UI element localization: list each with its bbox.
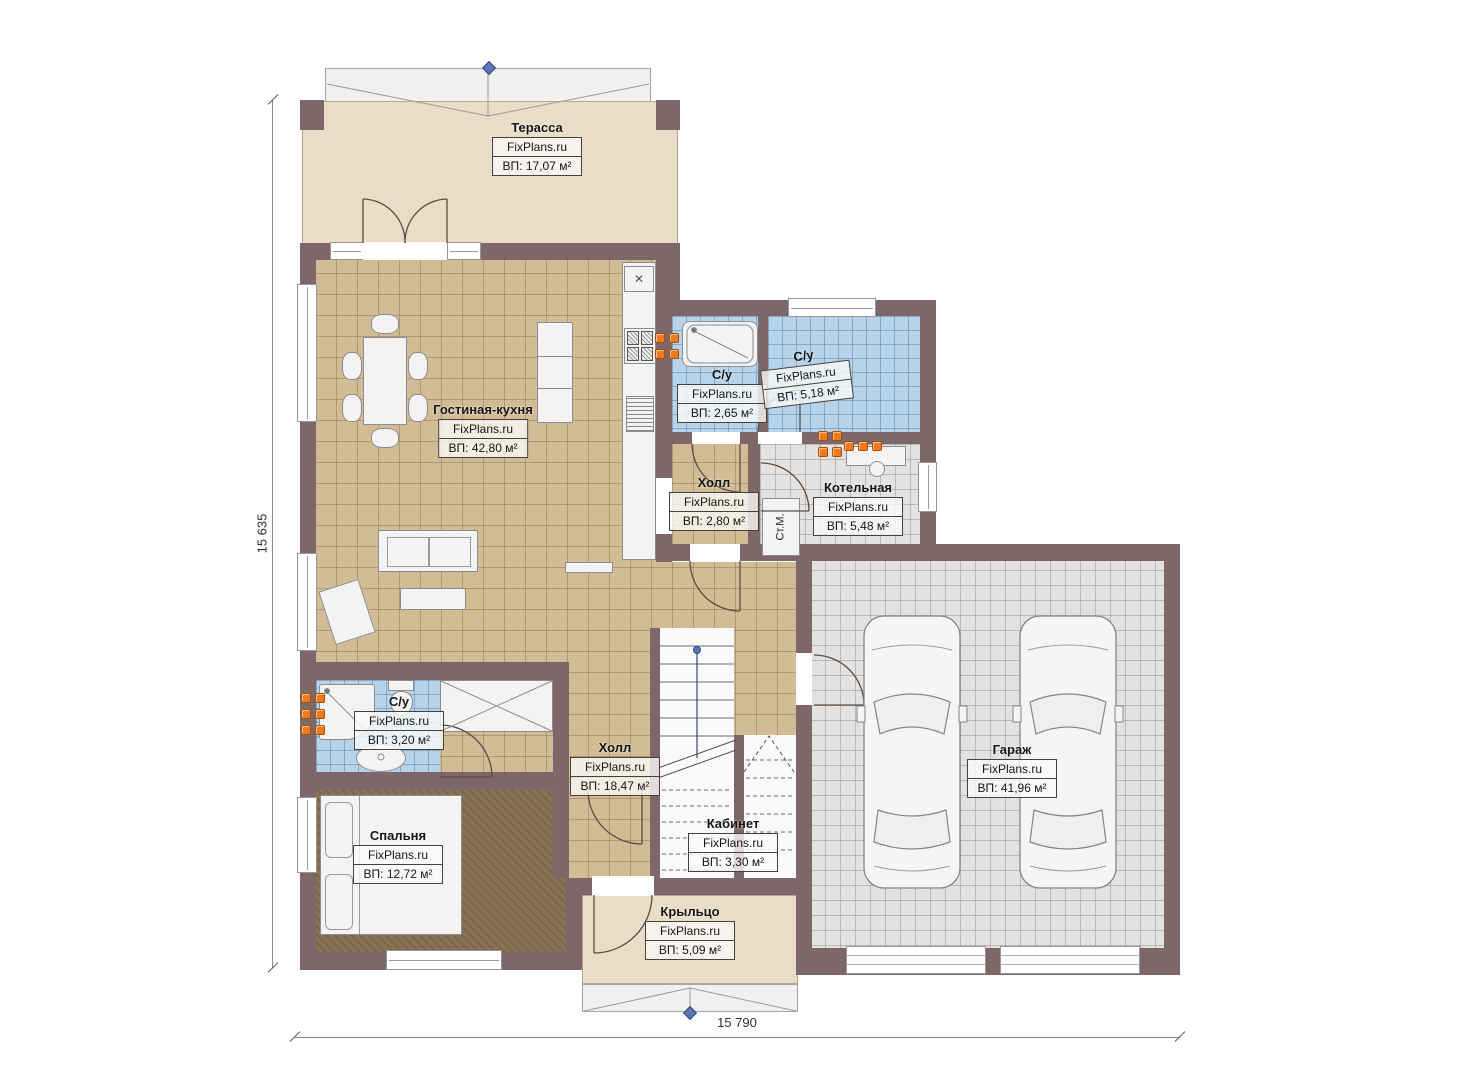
dimension-tick bbox=[268, 94, 279, 105]
radiator-dot-icon bbox=[655, 333, 665, 343]
radiator-dot-icon bbox=[858, 441, 868, 451]
staircase bbox=[660, 628, 734, 762]
room-info-box: FixPlans.ru ВП: 12,72 м² bbox=[353, 845, 443, 884]
brand-label: FixPlans.ru bbox=[689, 834, 777, 853]
garage-gate bbox=[846, 946, 986, 974]
wall bbox=[566, 878, 582, 970]
room-area: ВП: 17,07 м² bbox=[493, 157, 581, 175]
room-name: Гостиная-кухня bbox=[433, 402, 533, 417]
room-name: Котельная bbox=[813, 480, 903, 495]
room-label-wc-big: С/у FixPlans.ru ВП: 5,18 м² bbox=[758, 343, 854, 410]
room-area: ВП: 12,72 м² bbox=[354, 865, 442, 883]
burner-icon bbox=[627, 347, 639, 361]
wall bbox=[920, 300, 936, 560]
terrace-floor bbox=[302, 101, 678, 244]
wall bbox=[553, 662, 569, 878]
room-area: ВП: 5,48 м² bbox=[814, 517, 902, 535]
garage-door-opening bbox=[796, 653, 812, 705]
door-opening bbox=[758, 432, 802, 444]
burner-icon bbox=[627, 331, 639, 345]
toilet-tank bbox=[388, 680, 414, 691]
cushion bbox=[429, 537, 471, 567]
chair bbox=[408, 394, 428, 422]
room-info-box: FixPlans.ru ВП: 5,48 м² bbox=[813, 497, 903, 536]
dimension-width-label: 15 790 bbox=[662, 1015, 812, 1030]
radiator-dot-icon bbox=[315, 693, 325, 703]
brand-label: FixPlans.ru bbox=[354, 846, 442, 865]
room-label-bedroom: Спальня FixPlans.ru ВП: 12,72 м² bbox=[353, 828, 443, 884]
radiator-dot-icon bbox=[301, 709, 311, 719]
chair bbox=[408, 352, 428, 380]
chair bbox=[371, 314, 399, 334]
room-name: Холл bbox=[669, 475, 759, 490]
dishwasher bbox=[626, 396, 654, 432]
room-name: Гараж bbox=[967, 742, 1057, 757]
brand-label: FixPlans.ru bbox=[439, 420, 527, 439]
window bbox=[297, 284, 317, 422]
room-label-wc-lower: С/у FixPlans.ru ВП: 3,20 м² bbox=[354, 694, 444, 750]
room-area: ВП: 18,47 м² bbox=[571, 777, 659, 795]
burner-icon bbox=[641, 331, 653, 345]
room-area: ВП: 42,80 м² bbox=[439, 439, 527, 457]
room-area: ВП: 5,09 м² bbox=[646, 941, 734, 959]
brand-label: FixPlans.ru bbox=[968, 760, 1056, 779]
room-name: Крыльцо bbox=[645, 904, 735, 919]
radiator-dot-icon bbox=[844, 441, 854, 451]
burner-icon bbox=[641, 347, 653, 361]
kitchen-island bbox=[537, 322, 573, 423]
door-opening bbox=[690, 544, 740, 561]
room-info-box: FixPlans.ru ВП: 5,09 м² bbox=[645, 921, 735, 960]
bathtub bbox=[682, 321, 758, 367]
dimension-line-left bbox=[272, 100, 273, 968]
radiator-dot-icon bbox=[832, 431, 842, 441]
radiator-dot-icon bbox=[301, 725, 311, 735]
door-opening bbox=[692, 432, 740, 444]
corridor-floor bbox=[440, 732, 566, 772]
window bbox=[330, 242, 364, 260]
room-name: Терасса bbox=[492, 120, 582, 135]
room-info-box: FixPlans.ru ВП: 2,80 м² bbox=[669, 492, 759, 531]
dimension-line-bottom bbox=[295, 1037, 1180, 1038]
brand-label: FixPlans.ru bbox=[493, 138, 581, 157]
radiator bbox=[655, 333, 677, 359]
garage-gate bbox=[1000, 946, 1140, 974]
brand-label: FixPlans.ru bbox=[571, 758, 659, 777]
chair bbox=[342, 352, 362, 380]
radiator-dot-icon bbox=[818, 431, 828, 441]
cooker-hood-icon: ✕ bbox=[624, 266, 654, 292]
radiator-dot-icon bbox=[315, 725, 325, 735]
brand-label: FixPlans.ru bbox=[678, 385, 766, 404]
pillow bbox=[325, 802, 353, 858]
wall bbox=[1164, 544, 1180, 975]
radiator-dot-icon bbox=[669, 349, 679, 359]
entrance-door-opening bbox=[592, 876, 654, 896]
window bbox=[918, 462, 937, 512]
door-opening bbox=[363, 242, 448, 260]
room-label-hall-small: Холл FixPlans.ru ВП: 2,80 м² bbox=[669, 475, 759, 531]
window bbox=[386, 950, 502, 970]
room-info-box: FixPlans.ru ВП: 17,07 м² bbox=[492, 137, 582, 176]
pillow bbox=[325, 874, 353, 930]
room-name: Кабинет bbox=[688, 816, 778, 831]
tv-bench bbox=[565, 562, 613, 573]
room-info-box: FixPlans.ru ВП: 2,65 м² bbox=[677, 384, 767, 423]
boiler bbox=[869, 461, 885, 477]
room-label-boiler: Котельная FixPlans.ru ВП: 5,48 м² bbox=[813, 480, 903, 536]
wall bbox=[796, 544, 812, 975]
wall bbox=[300, 100, 324, 130]
window bbox=[297, 797, 317, 873]
room-label-terrace: Терасса FixPlans.ru ВП: 17,07 м² bbox=[492, 120, 582, 176]
wall bbox=[300, 662, 566, 680]
coffee-table bbox=[400, 588, 466, 610]
room-label-wc-small: С/у FixPlans.ru ВП: 2,65 м² bbox=[677, 367, 767, 423]
floor-plan: 15 635 15 790 bbox=[0, 0, 1474, 1080]
room-label-porch: Крыльцо FixPlans.ru ВП: 5,09 м² bbox=[645, 904, 735, 960]
radiator-dot-icon bbox=[872, 441, 882, 451]
dimension-height-label: 15 635 bbox=[255, 494, 270, 574]
radiator-dot-icon bbox=[655, 349, 665, 359]
sofa bbox=[378, 530, 478, 572]
room-area: ВП: 2,65 м² bbox=[678, 404, 766, 422]
room-label-office: Кабинет FixPlans.ru ВП: 3,30 м² bbox=[688, 816, 778, 872]
cushion bbox=[387, 537, 429, 567]
wall bbox=[300, 772, 566, 790]
room-info-box: FixPlans.ru ВП: 3,30 м² bbox=[688, 833, 778, 872]
room-info-box: FixPlans.ru ВП: 18,47 м² bbox=[570, 757, 660, 796]
radiator-dot-icon bbox=[818, 447, 828, 457]
room-name: Спальня bbox=[353, 828, 443, 843]
room-name: Холл bbox=[570, 740, 660, 755]
room-info-box: FixPlans.ru ВП: 41,96 м² bbox=[967, 759, 1057, 798]
wall bbox=[656, 544, 690, 561]
window bbox=[788, 298, 876, 317]
room-info-box: FixPlans.ru ВП: 3,20 м² bbox=[354, 711, 444, 750]
room-label-garage: Гараж FixPlans.ru ВП: 41,96 м² bbox=[967, 742, 1057, 798]
chair bbox=[342, 394, 362, 422]
dining-table bbox=[363, 337, 407, 425]
washing-machine-label: Ст.М. bbox=[775, 513, 787, 540]
brand-label: FixPlans.ru bbox=[355, 712, 443, 731]
wall bbox=[796, 544, 1180, 561]
room-label-living: Гостиная-кухня FixPlans.ru ВП: 42,80 м² bbox=[433, 402, 533, 458]
divider bbox=[538, 388, 572, 389]
radiator-dot-icon bbox=[301, 693, 311, 703]
radiator bbox=[818, 431, 840, 457]
brand-label: FixPlans.ru bbox=[646, 922, 734, 941]
wardrobe bbox=[440, 680, 553, 732]
room-name: С/у bbox=[677, 367, 767, 382]
radiator-dot-icon bbox=[832, 447, 842, 457]
radiator bbox=[844, 441, 880, 451]
room-area: ВП: 3,30 м² bbox=[689, 853, 777, 871]
stove bbox=[624, 328, 656, 364]
radiator-dot-icon bbox=[669, 333, 679, 343]
chair bbox=[371, 428, 399, 448]
wall bbox=[656, 100, 680, 130]
room-label-hall-main: Холл FixPlans.ru ВП: 18,47 м² bbox=[570, 740, 660, 796]
window bbox=[447, 242, 481, 260]
brand-label: FixPlans.ru bbox=[670, 493, 758, 512]
room-area: ВП: 3,20 м² bbox=[355, 731, 443, 749]
dimension-tick bbox=[268, 962, 279, 973]
room-area: ВП: 41,96 м² bbox=[968, 779, 1056, 797]
brand-label: FixPlans.ru bbox=[814, 498, 902, 517]
divider bbox=[538, 356, 572, 357]
room-info-box: FixPlans.ru ВП: 42,80 м² bbox=[438, 419, 528, 458]
washing-machine: Ст.М. bbox=[762, 498, 800, 556]
room-area: ВП: 2,80 м² bbox=[670, 512, 758, 530]
radiator bbox=[301, 693, 323, 735]
room-name: С/у bbox=[354, 694, 444, 709]
window bbox=[297, 553, 317, 651]
radiator-dot-icon bbox=[315, 709, 325, 719]
